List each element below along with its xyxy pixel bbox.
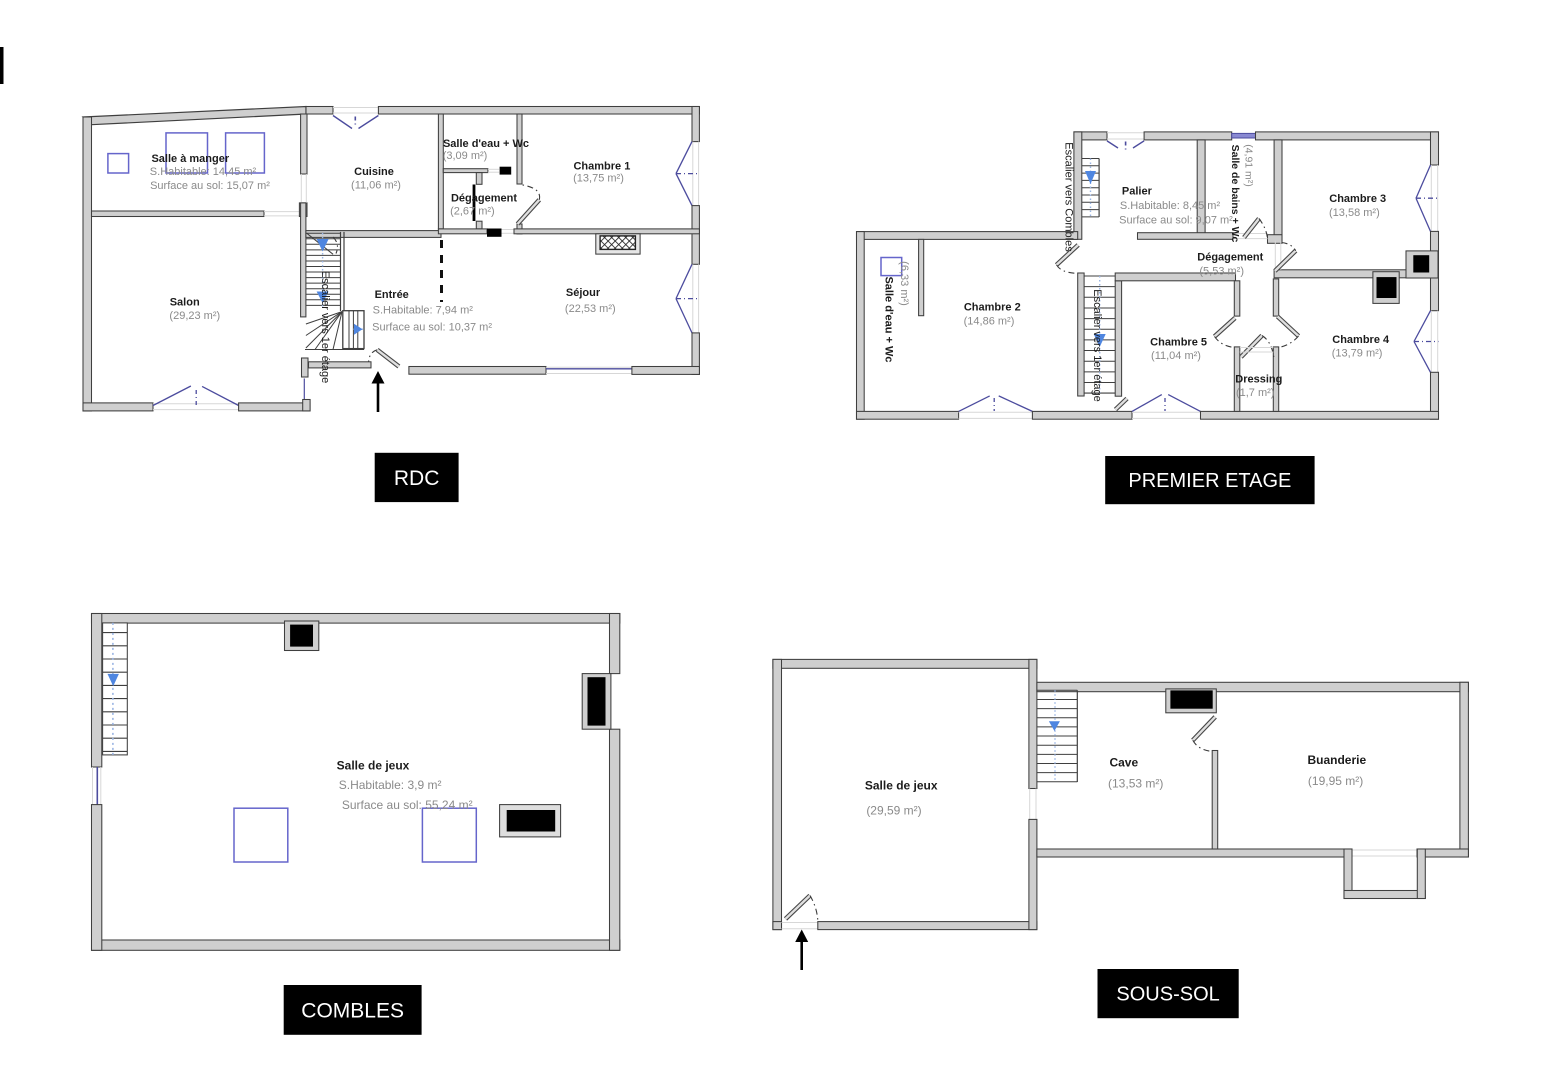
svg-text:Entrée: Entrée [375, 289, 409, 301]
svg-text:Dégagement: Dégagement [451, 192, 517, 204]
svg-text:Chambre 1: Chambre 1 [573, 160, 630, 172]
svg-text:Surface au sol: 10,37 m²: Surface au sol: 10,37 m² [372, 321, 492, 333]
svg-text:Salle d'eau + Wc: Salle d'eau + Wc [443, 138, 529, 150]
svg-text:Salle de jeux: Salle de jeux [337, 758, 410, 772]
svg-text:(29,23 m²): (29,23 m²) [169, 310, 220, 322]
svg-text:(19,95 m²): (19,95 m²) [1308, 774, 1363, 788]
svg-text:(3,09 m²): (3,09 m²) [443, 150, 488, 162]
svg-text:Surface au sol: 15,07 m²: Surface au sol: 15,07 m² [150, 180, 270, 192]
svg-text:Salle de jeux: Salle de jeux [865, 779, 938, 793]
svg-text:(13,58 m²): (13,58 m²) [1329, 207, 1380, 219]
svg-text:S.Habitable: 8,45 m²: S.Habitable: 8,45 m² [1120, 200, 1221, 212]
svg-text:S.Habitable: 14,45 m²: S.Habitable: 14,45 m² [150, 166, 257, 178]
svg-text:(6,33 m²): (6,33 m²) [898, 261, 910, 306]
svg-text:Surface au sol: 55,24 m²: Surface au sol: 55,24 m² [342, 798, 473, 812]
svg-text:Escalier vers 1er étage: Escalier vers 1er étage [1091, 289, 1103, 402]
svg-text:PREMIER ETAGE: PREMIER ETAGE [1128, 470, 1291, 492]
svg-text:Cave: Cave [1109, 756, 1138, 770]
svg-text:(29,59 m²): (29,59 m²) [866, 803, 921, 817]
svg-text:(4,91 m²): (4,91 m²) [1243, 144, 1255, 187]
svg-text:Séjour: Séjour [566, 287, 601, 299]
svg-text:Chambre 5: Chambre 5 [1150, 336, 1207, 348]
svg-text:Surface au sol: 9,07 m²: Surface au sol: 9,07 m² [1119, 214, 1233, 226]
svg-text:Salon: Salon [170, 296, 200, 308]
svg-text:(13,75 m²): (13,75 m²) [573, 173, 624, 185]
svg-text:Chambre 3: Chambre 3 [1329, 193, 1386, 205]
svg-text:Salle de bains + Wc: Salle de bains + Wc [1229, 145, 1241, 243]
svg-text:SOUS-SOL: SOUS-SOL [1116, 984, 1219, 1006]
svg-text:S.Habitable: 3,9 m²: S.Habitable: 3,9 m² [339, 778, 442, 792]
svg-text:(22,53 m²): (22,53 m²) [565, 303, 616, 315]
svg-text:Salle à manger: Salle à manger [151, 153, 229, 165]
svg-text:Dégagement: Dégagement [1197, 252, 1263, 264]
svg-text:Salle d'eau + Wc: Salle d'eau + Wc [883, 276, 895, 362]
svg-text:Escalier vers 1er étage: Escalier vers 1er étage [319, 271, 331, 384]
svg-text:(11,04 m²): (11,04 m²) [1151, 350, 1201, 362]
svg-text:(13,79 m²): (13,79 m²) [1332, 347, 1383, 359]
svg-text:Cuisine: Cuisine [354, 166, 394, 178]
svg-text:(2,67 m²): (2,67 m²) [450, 205, 495, 217]
svg-text:Palier: Palier [1122, 185, 1153, 197]
svg-text:Chambre 2: Chambre 2 [964, 302, 1021, 314]
svg-text:Buanderie: Buanderie [1307, 753, 1366, 767]
svg-text:(14,86 m²): (14,86 m²) [964, 315, 1015, 327]
svg-text:S.Habitable: 7,94 m²: S.Habitable: 7,94 m² [373, 304, 474, 316]
svg-text:(1,7 m²): (1,7 m²) [1236, 387, 1275, 399]
svg-text:Chambre 4: Chambre 4 [1332, 334, 1390, 346]
svg-text:RDC: RDC [394, 467, 440, 490]
svg-text:COMBLES: COMBLES [301, 999, 404, 1022]
svg-text:(11,06 m²): (11,06 m²) [351, 180, 401, 192]
svg-text:(13,53 m²): (13,53 m²) [1108, 777, 1163, 791]
svg-text:Escalier vers Combles: Escalier vers Combles [1062, 142, 1074, 252]
svg-text:(5,53 m²): (5,53 m²) [1199, 265, 1244, 277]
svg-text:Dressing: Dressing [1235, 374, 1282, 386]
